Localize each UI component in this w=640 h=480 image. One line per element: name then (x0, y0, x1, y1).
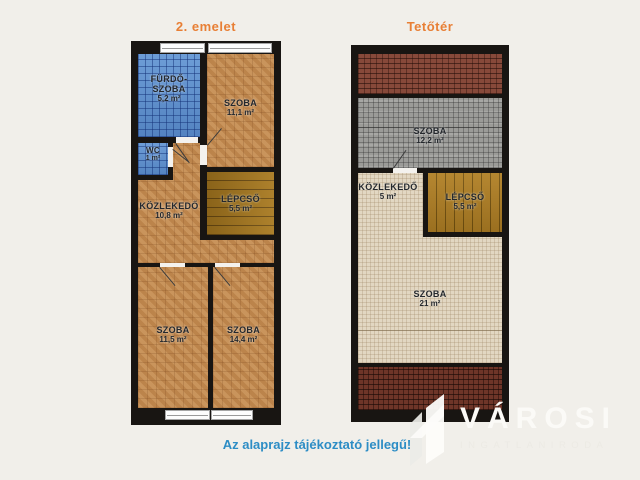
logo-subtitle: INGATLANIRODA (460, 440, 617, 451)
room-label-wc: WC 1 m² (138, 146, 168, 163)
window (165, 410, 210, 420)
room-label-furdoszoba: FÜRDŐ- SZOBA 5,2 m² (138, 74, 200, 104)
roof-hatch-top (358, 54, 502, 94)
room-label-szoba-14-4: SZOBA 14,4 m² (213, 325, 274, 345)
logo-building-icon (408, 392, 450, 468)
room-label-szoba-11-5: SZOBA 11,5 m² (138, 325, 208, 345)
room-label-kozlekedo: KÖZLEKEDŐ 10,8 m² (133, 201, 205, 221)
window (211, 410, 253, 420)
room-label-szoba-12-2: SZOBA 12,2 m² (358, 126, 502, 146)
door-opening (200, 145, 207, 165)
room-label-lepcso: LÉPCSŐ 5,5 m² (428, 192, 502, 212)
door-opening (160, 263, 185, 267)
door-opening (176, 137, 198, 143)
knee-wall-line (358, 330, 502, 331)
room-label-lepcso: LÉPCSŐ 5,5 m² (207, 194, 274, 214)
room-label-szoba-11-1: SZOBA 11,1 m² (207, 98, 274, 118)
floor-title-2-emelet: 2. emelet (131, 19, 281, 34)
logo-name: VÁROSI (460, 404, 617, 434)
logo: VÁROSI INGATLANIRODA (408, 392, 638, 472)
floorplan-tetoter: SZOBA 12,2 m² KÖZLEKEDŐ 5 m² LÉPCSŐ 5,5 … (351, 45, 509, 422)
window (160, 43, 205, 53)
logo-text: VÁROSI INGATLANIRODA (460, 404, 617, 451)
room-label-kozlekedo: KÖZLEKEDŐ 5 m² (355, 182, 421, 202)
floorplan-page: 2. emelet Tetőtér (0, 0, 640, 480)
window (208, 43, 272, 53)
room-kozlekedo-floor (200, 240, 274, 263)
room-label-szoba-21: SZOBA 21 m² (358, 289, 502, 309)
door-opening (215, 263, 240, 267)
floorplan-2-emelet: FÜRDŐ- SZOBA 5,2 m² SZOBA 11,1 m² WC 1 m… (131, 41, 281, 425)
floor-title-tetoter: Tetőtér (351, 19, 509, 34)
